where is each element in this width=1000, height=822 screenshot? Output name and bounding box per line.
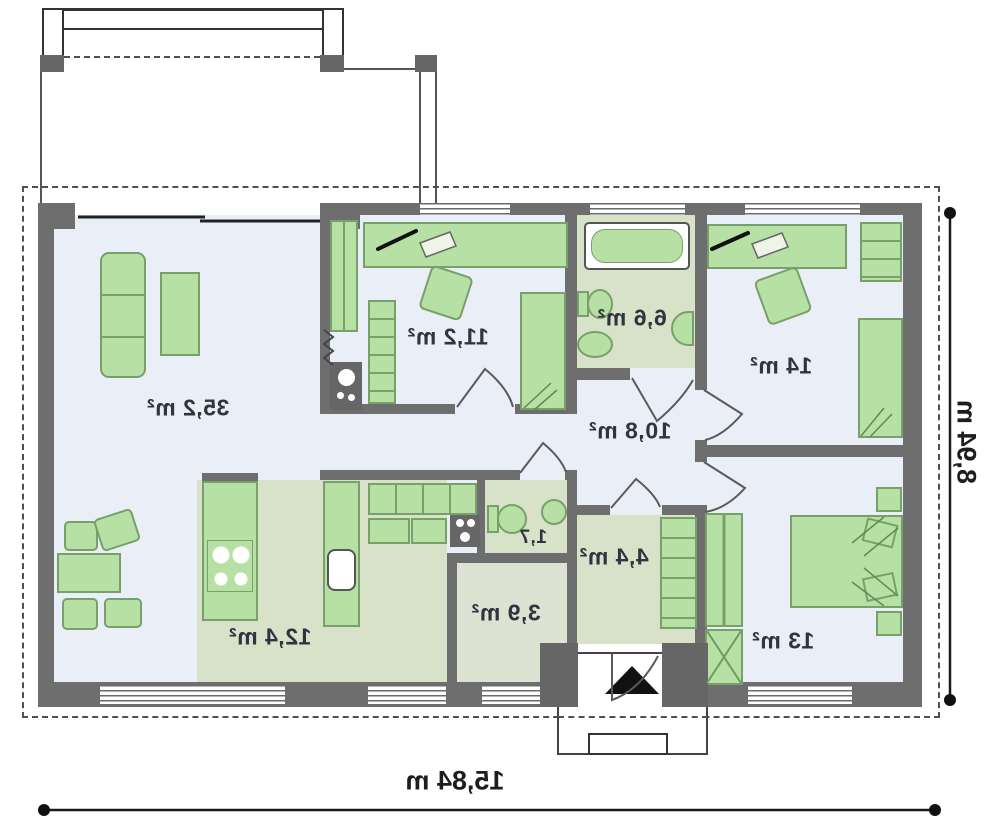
dining-chair: [64, 521, 98, 551]
porch-wall-right: [662, 643, 708, 707]
wall-hall-kitchen-a: [320, 470, 520, 480]
terrace-footing-right: [415, 55, 437, 72]
roof-dash-over-porch: [558, 716, 708, 718]
wall-hall-right-a: [695, 368, 707, 390]
terrace-edge-line: [344, 68, 416, 70]
wall-right: [903, 215, 922, 682]
wardrobe-corner: [705, 629, 743, 685]
sofa: [100, 252, 146, 378]
window-bathroom: [590, 203, 685, 215]
floor-plan: 35,2 m² 11,2 m² 6,6 m² 14 m² 10,8 m² 1,7…: [0, 0, 1000, 822]
wardrobe: [330, 220, 358, 332]
dining-chair: [62, 598, 98, 630]
wall-hall-entry-b: [662, 505, 707, 515]
room-label-entry: 4,4 m²: [579, 544, 648, 571]
nightstand: [876, 611, 902, 636]
dining-table: [57, 553, 121, 593]
porch-wall-left: [540, 643, 578, 707]
desk: [707, 224, 847, 269]
porch-step: [588, 733, 668, 755]
bookshelf: [368, 300, 396, 404]
desk: [363, 222, 568, 268]
kitchen-cabinet: [411, 518, 447, 544]
window-bedroom-right: [745, 203, 860, 215]
dimension-width-label: 15,84 m: [405, 766, 504, 797]
terrace-footing-mid: [320, 55, 344, 72]
wall-kitchen-storage: [447, 553, 457, 695]
entrance-arrow-icon: [605, 666, 659, 694]
window-living: [100, 685, 285, 704]
cooktop: [207, 540, 253, 592]
dimension-height-label: 8,94 m: [951, 400, 982, 484]
window-bedroom-top: [420, 203, 510, 215]
terrace-footing-left: [40, 55, 64, 72]
bidet: [577, 331, 613, 358]
wardrobe: [860, 222, 902, 282]
wardrobe: [705, 513, 743, 627]
room-label-wc: 1,7: [519, 527, 547, 549]
room-label-kitchen: 12,4 m²: [229, 624, 312, 651]
bathtub: [584, 222, 690, 270]
wall-hall-entry-a: [577, 505, 610, 515]
room-label-bathroom: 6,6 m²: [597, 305, 666, 332]
dining-chair: [104, 598, 142, 628]
wall-bath-hall-a: [565, 368, 630, 380]
window-kitchen: [368, 685, 446, 704]
coffee-table: [160, 272, 200, 356]
wall-bedrooms-right: [700, 445, 903, 457]
wall-wc-storage: [447, 553, 577, 563]
wall-bath-bedroomright: [695, 215, 707, 380]
fireplace: [330, 362, 362, 410]
kitchen-sink: [327, 549, 356, 591]
room-label-bedroom-right: 14 m²: [750, 353, 813, 380]
bed-single: [858, 318, 903, 438]
chimney: [450, 515, 480, 547]
entry-wardrobe: [660, 517, 697, 629]
pergola-beam: [42, 8, 344, 30]
kitchen-cabinet: [368, 518, 410, 544]
room-label-living: 35,2 m²: [147, 395, 230, 422]
wall-left: [38, 215, 54, 682]
bed-single: [520, 292, 566, 410]
room-label-storage: 3,9 m²: [471, 600, 540, 627]
wall-living-bedroomtop: [320, 215, 330, 414]
terrace: [40, 57, 437, 207]
room-label-bedroom-top: 11,2 m²: [407, 324, 489, 351]
dimension-line-width: [38, 804, 941, 816]
terrace-dashed-edge: [64, 56, 320, 58]
room-label-hall: 10,8 m²: [589, 418, 672, 445]
window-bedroom-bottom: [748, 685, 852, 704]
kitchen-cabinets: [368, 483, 477, 515]
wall-counter-cap: [202, 473, 258, 481]
wc-sink: [541, 499, 567, 525]
nightstand: [876, 487, 902, 512]
room-label-bedroom-bottom: 13 m²: [752, 628, 815, 655]
terrace-glass-door: [75, 203, 320, 215]
